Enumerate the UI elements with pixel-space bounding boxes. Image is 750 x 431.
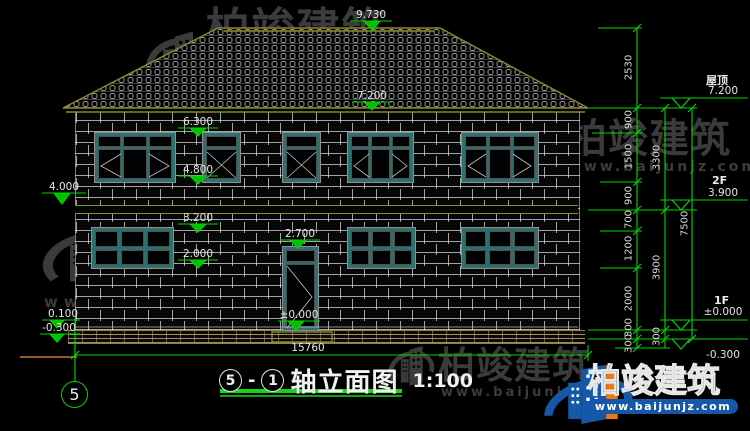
level-plinth-left: 0.100 xyxy=(44,308,82,320)
title-axis-to: 1 xyxy=(261,369,284,392)
title-text: 轴立面图 xyxy=(290,362,398,399)
level-grade-left: -0.300 xyxy=(38,322,80,334)
title-scale: 1:100 xyxy=(413,370,473,392)
title-axis-separator: - xyxy=(248,370,255,391)
right-grade-value: -0.300 xyxy=(698,349,748,361)
level-band-left: 4.000 xyxy=(42,181,86,193)
level-win1-sill: 2.000 xyxy=(178,248,218,260)
dim-inner-300b: 300 xyxy=(624,314,635,374)
level-win1-head: 3.200 xyxy=(178,212,218,224)
brand-logo-text: 柏竣建筑 xyxy=(588,364,720,397)
level-ridge: 9.730 xyxy=(350,9,392,21)
dim-outer-7500: 7500 xyxy=(680,194,691,254)
level-win2-sill: 4.800 xyxy=(178,164,218,176)
right-f1-value: ±0.000 xyxy=(698,306,748,318)
level-door-head: 2.700 xyxy=(280,228,320,240)
dim-total-width: 15760 xyxy=(278,342,338,354)
elevation-drawing-canvas: 柏竣建筑 www.baijunjz.com 柏竣建筑 www.baijunjz.… xyxy=(0,0,750,431)
dim-inner-2530: 2530 xyxy=(624,38,635,98)
dim-mid-3900: 3900 xyxy=(652,238,663,298)
right-f2-label: 2F xyxy=(712,174,727,187)
axis-bubble-5: 5 xyxy=(61,381,88,408)
drawing-title: 5 - 1 轴立面图 1:100 xyxy=(219,362,473,399)
brand-logo-site: www.baijunjz.com xyxy=(588,399,738,414)
right-f2-value: 3.900 xyxy=(700,187,746,199)
level-floor-door: ±0.000 xyxy=(276,309,322,321)
right-roof-value: 7.200 xyxy=(700,85,746,97)
dim-mid-3300: 3300 xyxy=(652,128,663,188)
level-eave: 7.200 xyxy=(352,90,392,102)
dim-mid-300: 300 xyxy=(652,307,663,367)
level-win2-head: 6.300 xyxy=(178,116,218,128)
title-axis-from: 5 xyxy=(219,369,242,392)
